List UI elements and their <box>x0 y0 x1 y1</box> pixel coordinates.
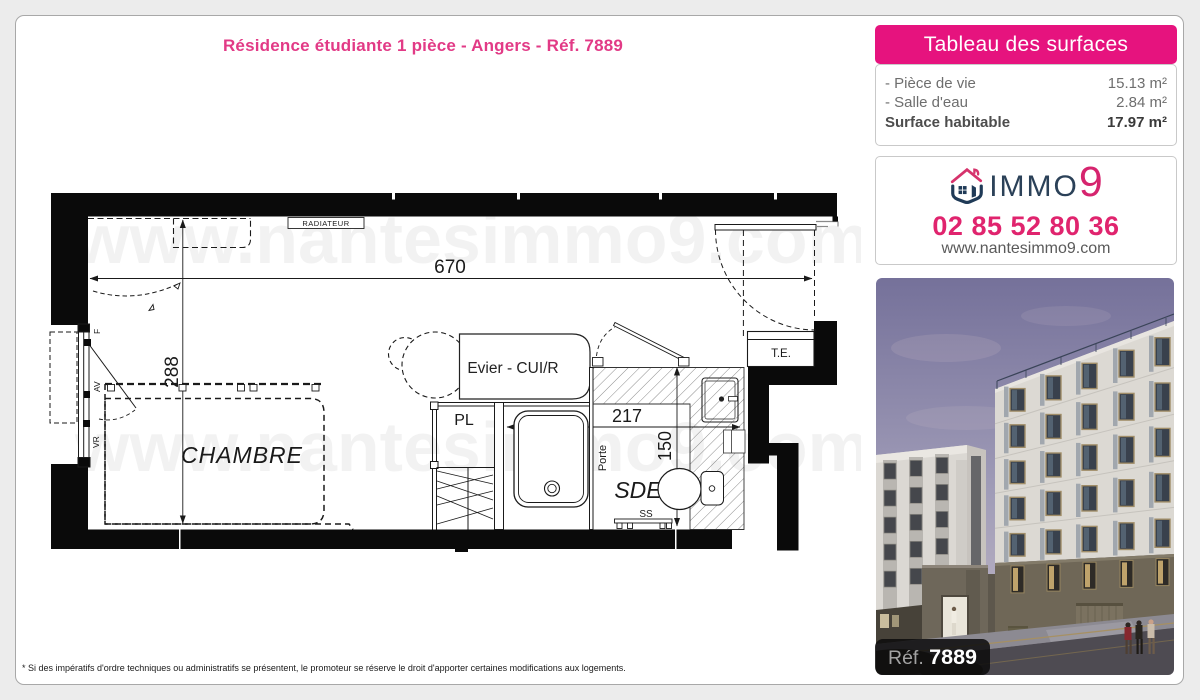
svg-text:F: F <box>92 329 102 334</box>
svg-text:CHAMBRE: CHAMBRE <box>181 442 303 468</box>
svg-text:670: 670 <box>434 257 466 278</box>
svg-text:SS: SS <box>639 509 653 520</box>
svg-text:SDE: SDE <box>614 477 662 503</box>
svg-text:Evier - CUI/R: Evier - CUI/R <box>467 360 558 377</box>
svg-text:T.E.: T.E. <box>771 348 791 360</box>
svg-text:AV: AV <box>92 381 102 392</box>
svg-text:VR: VR <box>91 436 101 448</box>
svg-text:217: 217 <box>612 406 642 426</box>
svg-text:RADIATEUR: RADIATEUR <box>302 219 349 228</box>
svg-text:PL: PL <box>454 412 474 429</box>
svg-text:150: 150 <box>655 431 675 461</box>
svg-text:Porte: Porte <box>597 445 609 471</box>
